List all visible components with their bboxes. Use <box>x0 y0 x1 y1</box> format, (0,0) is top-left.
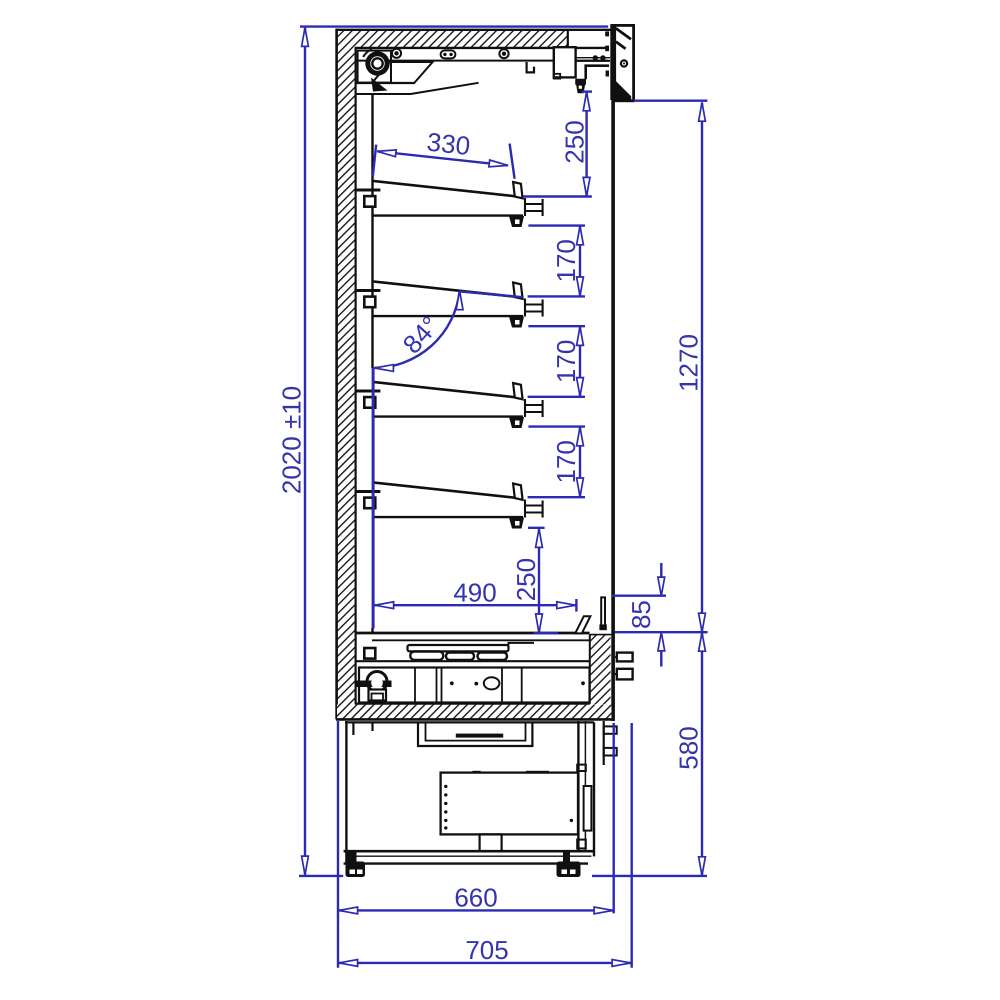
svg-text:1270: 1270 <box>674 334 704 392</box>
svg-text:490: 490 <box>453 578 496 608</box>
svg-text:85: 85 <box>626 600 656 629</box>
svg-text:250: 250 <box>560 120 590 163</box>
svg-text:2020 ±10: 2020 ±10 <box>277 386 307 494</box>
svg-text:330: 330 <box>425 127 471 162</box>
svg-text:170: 170 <box>551 440 581 483</box>
svg-text:660: 660 <box>454 882 497 912</box>
svg-text:250: 250 <box>511 558 541 601</box>
svg-text:705: 705 <box>465 935 508 965</box>
svg-text:580: 580 <box>674 726 704 769</box>
svg-text:170: 170 <box>551 340 581 383</box>
svg-text:170: 170 <box>551 239 581 282</box>
